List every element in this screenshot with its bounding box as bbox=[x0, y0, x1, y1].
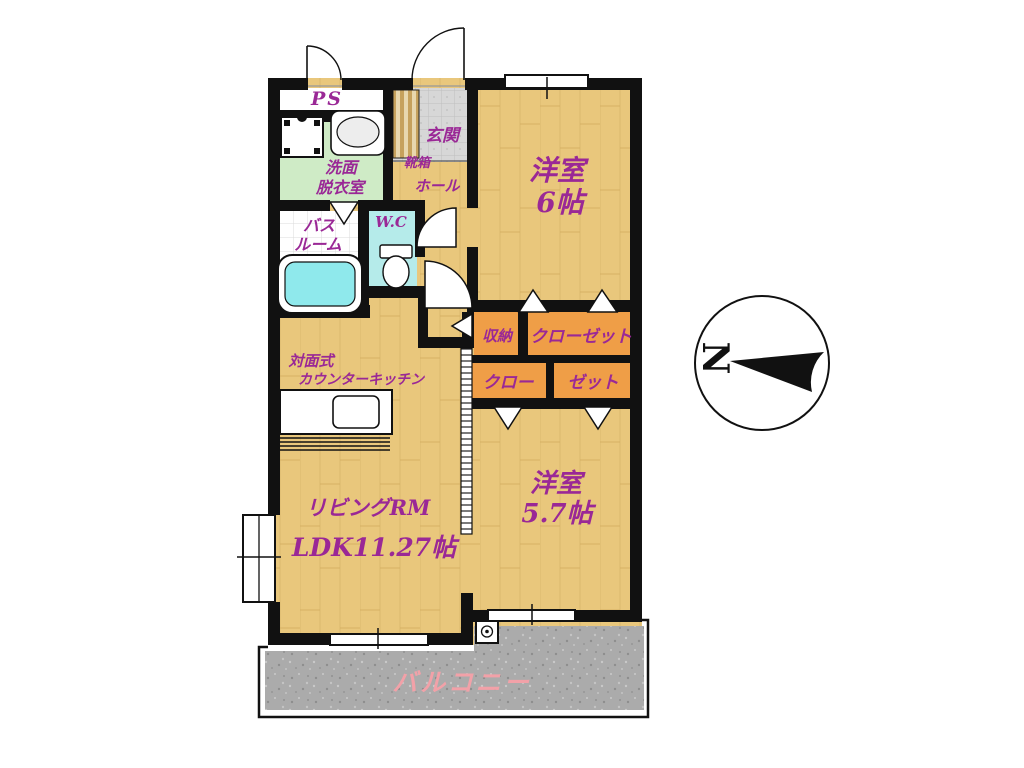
label-hall: ホール bbox=[414, 177, 460, 195]
entrance-door-arc bbox=[412, 28, 464, 80]
compass: N bbox=[694, 296, 829, 430]
wall bbox=[268, 602, 280, 645]
label-entrance: 玄関 bbox=[425, 126, 462, 146]
label-living-1: リビングRM bbox=[306, 495, 431, 520]
toilet-bowl-icon bbox=[383, 256, 409, 288]
compass-north-label: N bbox=[694, 342, 736, 375]
label-room6-1: 洋室 bbox=[529, 154, 589, 187]
label-living-2: LDK11.27帖 bbox=[291, 533, 460, 562]
sliding-partition-track bbox=[461, 348, 472, 534]
bathtub-tap-icon bbox=[271, 287, 278, 292]
wall bbox=[546, 363, 554, 398]
wall bbox=[467, 90, 478, 208]
balcony-drain-dot-icon bbox=[485, 630, 489, 634]
label-closet-lower-left: クロー bbox=[483, 373, 535, 393]
label-wc: W.C bbox=[375, 213, 407, 231]
label-balcony: バルコニー bbox=[392, 668, 532, 697]
wall bbox=[464, 398, 642, 409]
kitchen-sink-icon bbox=[333, 396, 379, 428]
wall bbox=[342, 78, 413, 90]
pan-corner bbox=[314, 148, 320, 154]
label-bathroom-1: バス bbox=[303, 216, 335, 235]
pan-corner bbox=[284, 120, 290, 126]
wall bbox=[461, 593, 473, 645]
label-closet-upper: クローゼット bbox=[530, 327, 632, 347]
wall bbox=[472, 355, 638, 363]
label-closet-lower-right: ゼット bbox=[568, 373, 619, 393]
wall bbox=[518, 312, 528, 355]
label-washroom-1: 洗面 bbox=[325, 158, 360, 177]
label-storage: 収納 bbox=[482, 327, 514, 345]
label-room57-2: 5.7帖 bbox=[521, 499, 596, 529]
label-kitchen-1: 対面式 bbox=[287, 352, 336, 370]
sink-basin-icon bbox=[337, 117, 379, 147]
ps-door-arc bbox=[307, 46, 341, 80]
label-room6-2: 6帖 bbox=[536, 186, 587, 219]
bathtub-icon bbox=[285, 262, 355, 306]
wall bbox=[630, 78, 642, 622]
label-washroom-2: 脱衣室 bbox=[315, 178, 367, 197]
pan-corner bbox=[314, 120, 320, 126]
shoe-cabinet-icon bbox=[393, 90, 419, 158]
label-ps: PS bbox=[310, 88, 343, 110]
label-room57-1: 洋室 bbox=[530, 469, 586, 499]
floor-plan-canvas: PS 玄関 靴箱 ホール 洗面 脱衣室 バス ルーム W.C 洋室 6帖 収納 … bbox=[0, 0, 1024, 768]
label-bathroom-2: ルーム bbox=[294, 235, 342, 254]
label-kitchen-2: カウンターキッチン bbox=[298, 372, 425, 388]
label-shoe-box: 靴箱 bbox=[404, 155, 433, 171]
pan-corner bbox=[284, 148, 290, 154]
window-living-bottom bbox=[330, 634, 428, 645]
bathtub-tap-icon bbox=[271, 276, 278, 281]
